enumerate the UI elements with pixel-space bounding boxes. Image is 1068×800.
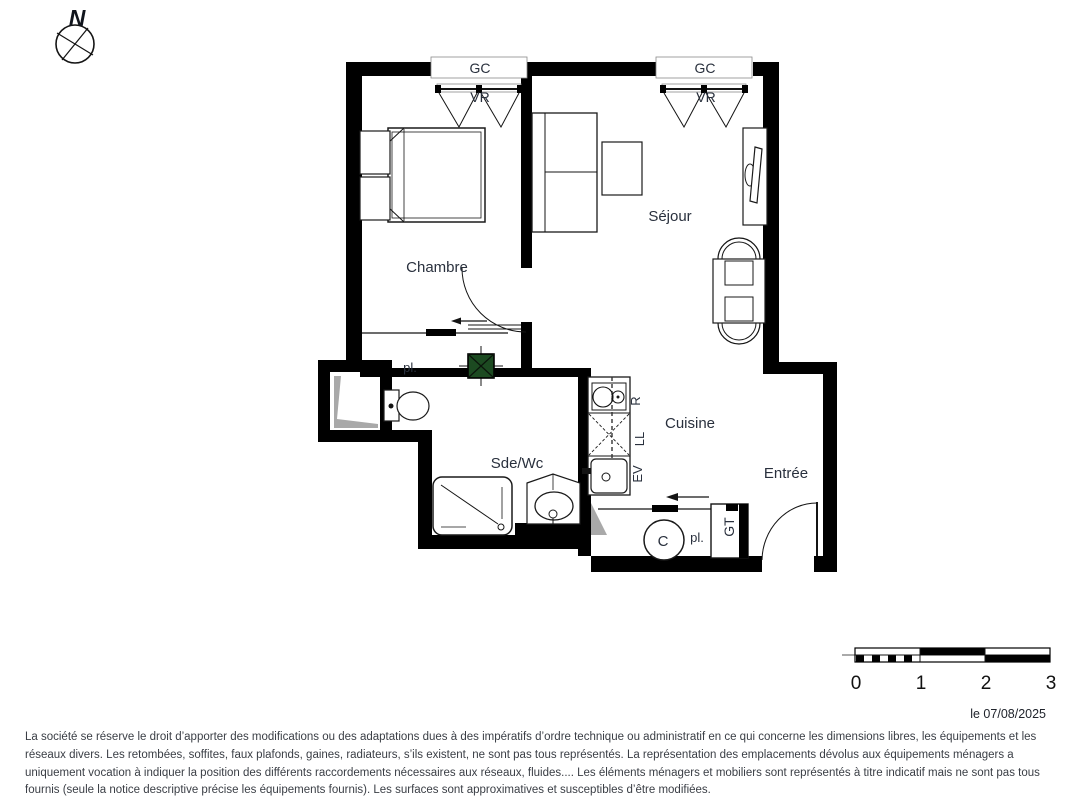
kitchen-counter — [582, 377, 630, 495]
kitchen-sink — [591, 459, 627, 493]
room-label-bathroom: Sde/Wc — [491, 455, 544, 472]
washing-machine-label: LL — [632, 432, 647, 446]
duct-shading — [591, 503, 607, 535]
room-label-kitchen: Cuisine — [665, 415, 715, 432]
window2-lintel-label: GC — [695, 60, 716, 76]
entry-door — [762, 502, 817, 560]
window1-shutter-label: VR — [470, 89, 489, 105]
scale-label-2: 2 — [981, 673, 992, 694]
cooktop-label: R — [628, 396, 643, 405]
room-label-living: Séjour — [648, 208, 691, 225]
bed — [388, 128, 485, 222]
scale-label-0: 0 — [851, 673, 862, 694]
toilet — [384, 390, 429, 421]
closet-label-entry: pl. — [690, 530, 704, 545]
scale-label-3: 3 — [1046, 673, 1057, 694]
sofa — [532, 113, 597, 232]
window2-shutter-label: VR — [696, 89, 715, 105]
scale-label-1: 1 — [916, 673, 927, 694]
tv-stand — [743, 128, 767, 225]
closet-label-bedroom: pl. — [403, 360, 417, 375]
coffee-table — [602, 142, 642, 195]
dining-table — [713, 238, 765, 344]
compass-north-label: N — [69, 5, 86, 31]
floor-plan-drawing: N — [0, 0, 1068, 800]
room-label-bedroom: Chambre — [406, 259, 468, 276]
washbasin — [527, 474, 580, 524]
technical-duct-label: GT — [721, 517, 737, 537]
room-label-entry: Entrée — [764, 465, 808, 482]
window1-lintel-label: GC — [470, 60, 491, 76]
scale-bar — [842, 648, 1050, 662]
entry-closet — [598, 493, 711, 512]
floor-plan-page: N — [0, 0, 1068, 800]
plan-date: le 07/08/2025 — [970, 707, 1046, 721]
legal-disclaimer: La société se réserve le droit d’apporte… — [25, 729, 1047, 800]
technical-duct-box — [459, 346, 503, 386]
shower — [433, 477, 512, 535]
bedroom-door — [362, 268, 526, 336]
nightstand-2 — [360, 177, 390, 220]
sink-label: EV — [630, 465, 645, 483]
water-heater-label: C — [658, 533, 669, 550]
nightstand-1 — [360, 131, 390, 174]
